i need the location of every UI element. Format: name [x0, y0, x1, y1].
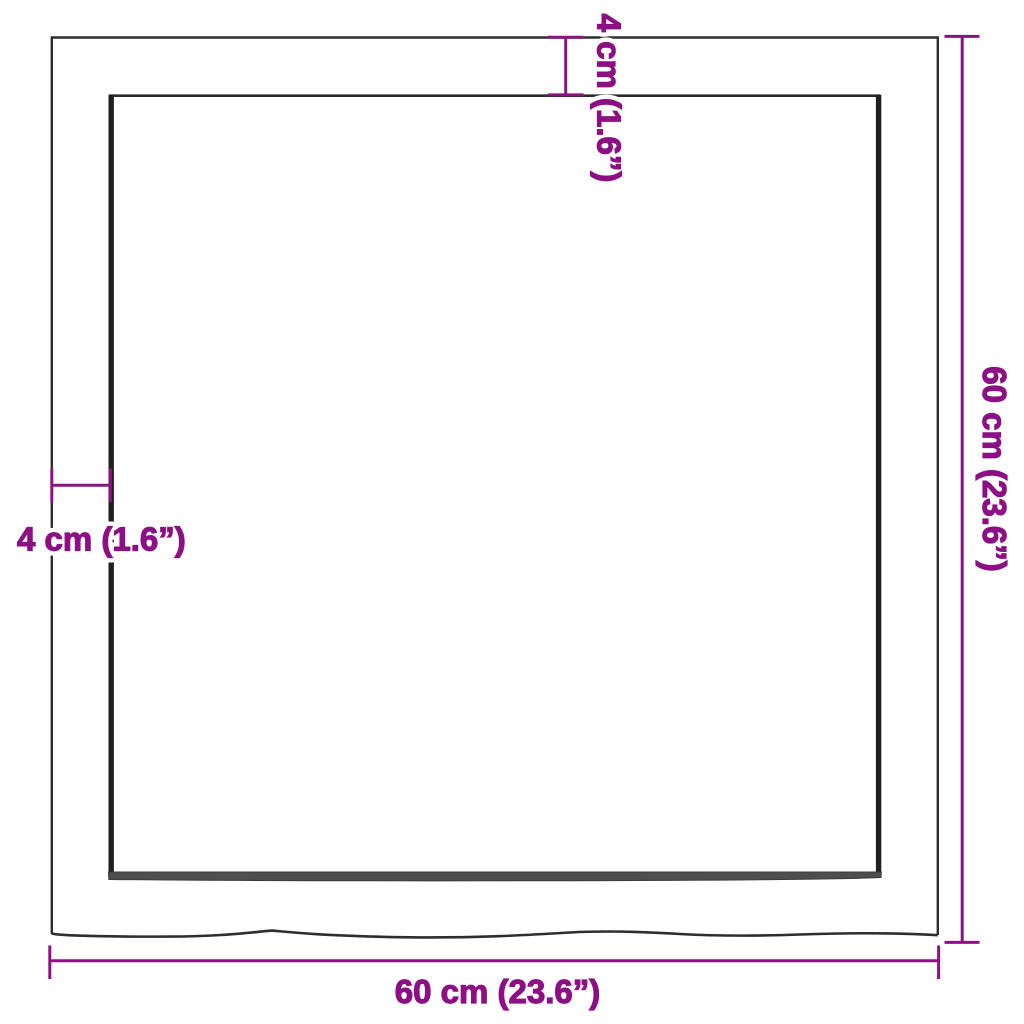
svg-text:4 cm (1.6”): 4 cm (1.6”): [591, 14, 628, 183]
svg-text:60 cm (23.6”): 60 cm (23.6”): [395, 973, 600, 1010]
svg-text:4 cm (1.6”): 4 cm (1.6”): [17, 521, 186, 558]
svg-text:60 cm (23.6”): 60 cm (23.6”): [976, 366, 1013, 571]
